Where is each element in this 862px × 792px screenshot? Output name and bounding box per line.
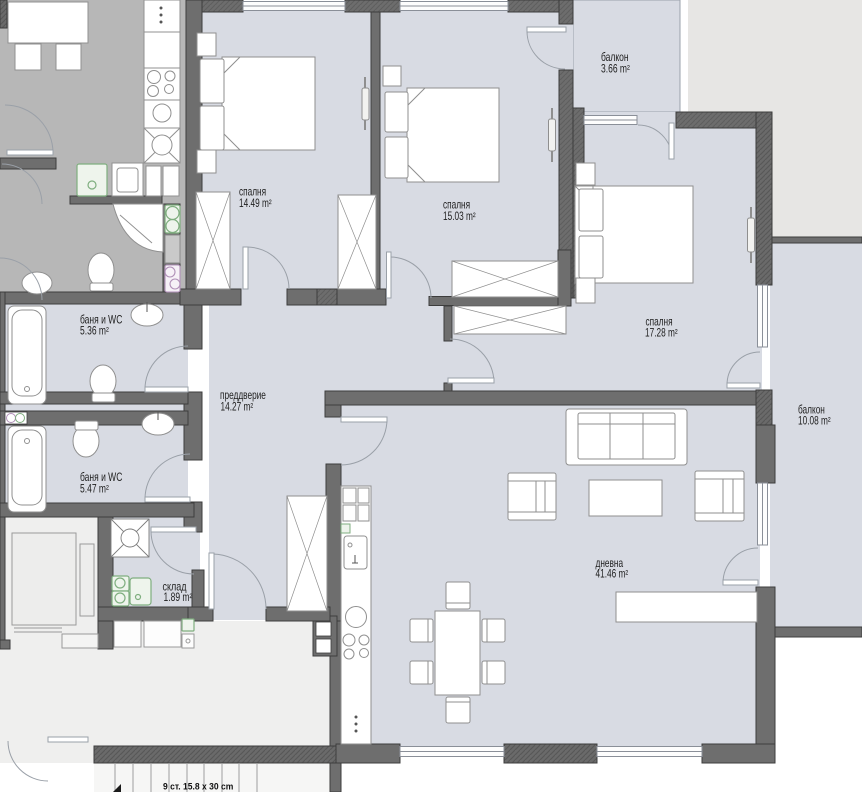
svg-text:41.46 m²: 41.46 m² <box>596 568 629 581</box>
svg-text:15.03 m²: 15.03 m² <box>443 211 476 224</box>
svg-text:5.36 m²: 5.36 m² <box>80 325 109 338</box>
svg-text:3.66 m²: 3.66 m² <box>601 63 630 76</box>
svg-text:9 ст. 15.8 х 30 cm: 9 ст. 15.8 х 30 cm <box>163 781 233 792</box>
svg-text:10.08 m²: 10.08 m² <box>798 415 831 428</box>
svg-text:14.49 m²: 14.49 m² <box>239 198 272 211</box>
svg-text:баня и WC: баня и WC <box>80 471 122 485</box>
svg-text:14.27 m²: 14.27 m² <box>221 401 254 414</box>
svg-text:балкон: балкон <box>601 51 629 65</box>
svg-text:1.89 m²: 1.89 m² <box>164 592 193 605</box>
svg-text:17.28 m²: 17.28 m² <box>645 327 678 340</box>
svg-text:5.47 m²: 5.47 m² <box>80 483 109 496</box>
